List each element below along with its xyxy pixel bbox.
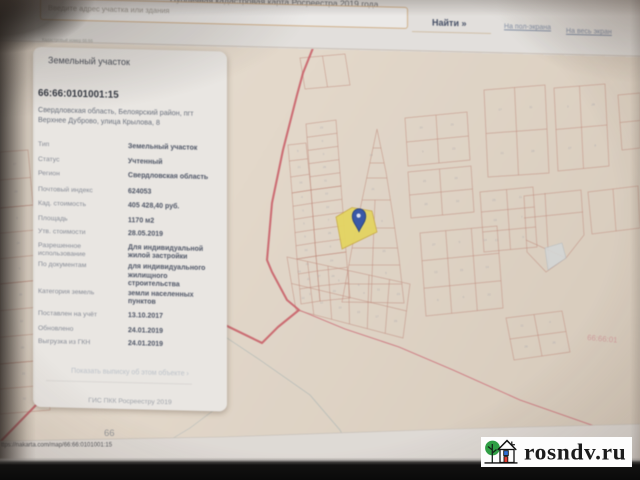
svg-text:rosndv.ru: rosndv.ru	[524, 440, 626, 466]
